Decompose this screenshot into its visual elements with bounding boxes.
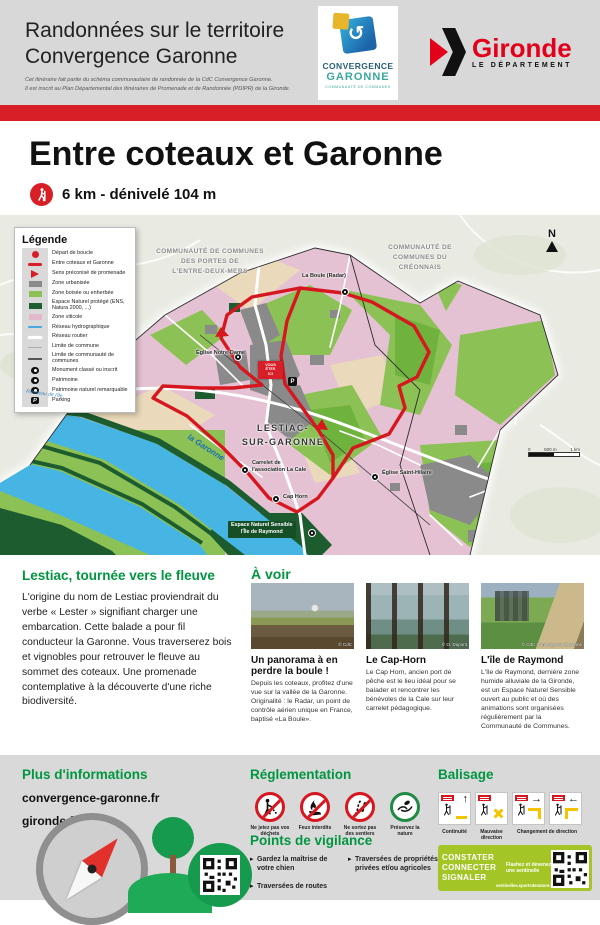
qr-code bbox=[200, 855, 240, 895]
arrow-up-icon: ↑ bbox=[463, 793, 469, 806]
zone-wooded-icon bbox=[22, 291, 48, 297]
north-letter: N bbox=[546, 229, 558, 240]
legend-item: Limite de communauté de communes bbox=[20, 353, 130, 365]
vigilance-item: Traversées de routes bbox=[250, 882, 347, 891]
card-cap-horn: © O. Dupont Le Cap-Horn Le Cap Horn, anc… bbox=[366, 583, 469, 732]
route-chip-icon bbox=[552, 795, 565, 801]
sentinelle-url[interactable]: sentinelles.sportsdenature.fr bbox=[496, 883, 553, 888]
direction-arrow-icon bbox=[22, 270, 48, 278]
picto-protect-nature: Préservez la nature bbox=[385, 792, 425, 838]
yellow-x-mark bbox=[493, 808, 504, 819]
legend-item: Patrimoine bbox=[20, 376, 130, 385]
gironde-department: LE DÉPARTEMENT bbox=[472, 62, 572, 69]
convergence-logo-line1: CONVERGENCE bbox=[323, 61, 394, 71]
no-fire-icon bbox=[300, 792, 330, 822]
route-chip-icon bbox=[515, 795, 528, 801]
legend-item: Monument classé ou inscrit bbox=[20, 366, 130, 375]
cc-creonnais-label: COMMUNAUTÉ DECOMMUNES DUCRÉONNAIS bbox=[360, 243, 480, 272]
sign-turn-left: ← bbox=[549, 792, 582, 825]
legend-item: Zone viticole bbox=[20, 313, 130, 322]
cap-horn-photo: © O. Dupont bbox=[366, 583, 469, 649]
hiker-icon bbox=[553, 803, 563, 821]
card-title: Le Cap-Horn bbox=[366, 655, 469, 666]
sentinelle-words: CONSTATER CONNECTER SIGNALER bbox=[442, 853, 504, 883]
content-section: Lestiac, tournée vers le fleuve L'origin… bbox=[0, 555, 600, 755]
convergence-garonne-logo: ↺ CONVERGENCE GARONNE COMMUNAUTÉ DE COMM… bbox=[318, 6, 398, 100]
map-parking-icon: P bbox=[288, 377, 297, 386]
gironde-name: Gironde bbox=[472, 35, 572, 61]
photo-credit: © CdC bbox=[338, 642, 352, 647]
legend-item: Réseau routier bbox=[20, 333, 130, 342]
card-panorama: © CdC Un panorama à en perdre la boule !… bbox=[251, 583, 354, 732]
card-text: Le Cap Horn, ancien port de pêche est le… bbox=[366, 669, 469, 714]
link-convergence-garonne[interactable]: convergence-garonne.fr bbox=[22, 791, 232, 805]
vigilance-item: Traversées de propriétés privées et/ou a… bbox=[348, 855, 440, 873]
compass-center-dot bbox=[88, 865, 97, 874]
photo-credit: © CdC Convergence Garonne bbox=[522, 642, 582, 647]
convergence-diamond-icon: ↺ bbox=[339, 16, 377, 54]
hiker-icon bbox=[516, 803, 526, 821]
route-chip-icon bbox=[441, 795, 454, 801]
card-title: Un panorama à en perdre la boule ! bbox=[251, 655, 354, 677]
legend-item: Espace Naturel protégé (ENS, Natura 2000… bbox=[20, 300, 130, 312]
trail-distance-elevation: 6 km - dénivelé 104 m bbox=[62, 186, 216, 203]
monument-icon bbox=[22, 367, 48, 375]
you-are-here-marker: VOUSÊTESICI bbox=[258, 361, 283, 379]
gironde-red-arrow bbox=[430, 38, 448, 66]
balisage-column: Balisage ↑ → ← bbox=[438, 767, 590, 845]
vigilance-item: Gardez la maîtrise de votre chien bbox=[250, 855, 340, 873]
panorama-photo: © CdC bbox=[251, 583, 354, 649]
red-divider-bar bbox=[0, 105, 600, 121]
description-heading: Lestiac, tournée vers le fleuve bbox=[22, 568, 215, 583]
eglise-saint-hilaire-label: Église Saint-Hilaire bbox=[382, 470, 432, 476]
trail-title-block: Entre coteaux et Garonne 6 km - dénivelé… bbox=[0, 121, 600, 215]
qr-code-circle bbox=[188, 843, 252, 907]
hiker-icon bbox=[30, 183, 53, 206]
yellow-corner-mark bbox=[528, 808, 541, 819]
zone-urban-icon bbox=[22, 281, 48, 287]
zone-protected-icon bbox=[22, 303, 48, 309]
reglementation-pictos: Ne jetez pas vos déchets Feux interdits bbox=[250, 792, 430, 838]
legend-item: Réseau hydrographique bbox=[20, 323, 130, 332]
sign-continuity: ↑ bbox=[438, 792, 471, 825]
eglise-notre-dame-label: Église Notre-Dame bbox=[196, 350, 245, 356]
north-arrow: N bbox=[546, 229, 558, 252]
hydro-network-icon bbox=[22, 326, 48, 328]
sign-turn-right: → bbox=[512, 792, 545, 825]
road-network-icon bbox=[22, 335, 48, 340]
legend-item: Zone urbanisée bbox=[20, 280, 130, 289]
board-title: Randonnées sur le territoire Convergence… bbox=[25, 18, 284, 71]
legend-item: PParking bbox=[20, 396, 130, 405]
gironde-logo-text: Gironde LE DÉPARTEMENT bbox=[472, 35, 572, 69]
footer: Plus d'informations convergence-garonne.… bbox=[0, 755, 600, 900]
board-note: Cet itinéraire fait partie du schéma com… bbox=[25, 76, 290, 94]
ens-ile-de-raymond-label: Espace Naturel Sensiblel'Île de Raymond bbox=[228, 521, 296, 538]
legend-title: Légende bbox=[22, 234, 130, 246]
map-legend: Légende Départ de boucle Entre coteaux e… bbox=[14, 227, 136, 413]
info-heading: Plus d'informations bbox=[22, 767, 232, 782]
north-triangle-icon bbox=[546, 241, 558, 252]
a-voir-cards: © CdC Un panorama à en perdre la boule !… bbox=[251, 583, 584, 732]
trail-map: Légende Départ de boucle Entre coteaux e… bbox=[0, 215, 600, 555]
yellow-corner-mark bbox=[565, 808, 578, 819]
legend-item: Entre coteaux et Garonne bbox=[20, 260, 130, 269]
ile-de-raymond-photo: © CdC Convergence Garonne bbox=[481, 583, 584, 649]
legend-item: Limite de commune bbox=[20, 343, 130, 352]
photo-credit: © O. Dupont bbox=[442, 642, 467, 647]
commune-limit-icon bbox=[22, 347, 48, 349]
card-title: L'île de Raymond bbox=[481, 655, 584, 666]
info-column: Plus d'informations convergence-garonne.… bbox=[22, 767, 232, 828]
gironde-arrow-icon bbox=[430, 28, 466, 76]
la-boule-poi-icon bbox=[341, 288, 349, 296]
lestiac-sur-garonne-label: LESTIAC-SUR-GARONNE bbox=[228, 421, 338, 450]
balisage-captions: Continuité Mauvaise direction Changement… bbox=[438, 829, 590, 845]
board-note-line1: Cet itinéraire fait partie du schéma com… bbox=[25, 76, 290, 85]
ens-poi-icon bbox=[308, 529, 316, 537]
a-voir-heading: À voir bbox=[251, 566, 291, 582]
picto-no-fire: Feux interdits bbox=[295, 792, 335, 838]
card-text: Depuis les coteaux, profitez d'une vue s… bbox=[251, 680, 354, 725]
picto-stay-on-trail: Ne sortez pas des sentiers bbox=[340, 792, 380, 838]
balisage-heading: Balisage bbox=[438, 767, 590, 782]
sentinelle-qr-code bbox=[551, 850, 589, 888]
trail-title: Entre coteaux et Garonne bbox=[29, 135, 443, 174]
reglementation-column: Réglementation Ne jetez pas vos déchets bbox=[250, 767, 430, 838]
protect-nature-icon bbox=[390, 792, 420, 822]
gironde-logo: Gironde LE DÉPARTEMENT bbox=[430, 28, 572, 76]
scale-mid: 500 m bbox=[544, 447, 557, 452]
convergence-logo-line2: GARONNE bbox=[326, 71, 389, 83]
cap-horn-label: Cap Horn bbox=[283, 494, 308, 500]
balisage-signs: ↑ → ← bbox=[438, 792, 590, 825]
reglementation-heading: Réglementation bbox=[250, 767, 430, 782]
header: Randonnées sur le territoire Convergence… bbox=[0, 0, 600, 105]
vigilance-heading: Points de vigilance bbox=[250, 833, 372, 848]
convergence-logo-subtitle: COMMUNAUTÉ DE COMMUNES bbox=[325, 85, 391, 89]
cap-horn-poi-icon bbox=[272, 495, 280, 503]
map-scale-bar: 0 500 m 1 km bbox=[528, 447, 580, 457]
trail-stats: 6 km - dénivelé 104 m bbox=[30, 183, 216, 206]
parking-icon: P bbox=[22, 397, 48, 405]
heritage-icon bbox=[22, 377, 48, 385]
legend-item: Zone boisée ou enherbée bbox=[20, 290, 130, 299]
no-litter-icon bbox=[255, 792, 285, 822]
carrelet-poi-icon bbox=[241, 466, 249, 474]
sentinelle-banner: CONSTATER CONNECTER SIGNALER Flashez et … bbox=[438, 845, 592, 891]
legend-item: Sens préconisé de promenade bbox=[20, 270, 130, 279]
board-title-line2: Convergence Garonne bbox=[25, 44, 284, 70]
stay-on-trail-icon bbox=[345, 792, 375, 822]
description-body: L'origine du nom de Lestiac proviendrait… bbox=[22, 591, 235, 710]
yellow-dash-mark bbox=[456, 816, 467, 819]
la-boule-label: La Boule (Radar) bbox=[302, 273, 346, 279]
cc-portes-entre-deux-mers-label: COMMUNAUTÉ DE COMMUNESDES PORTES DEL'ENT… bbox=[130, 247, 290, 276]
route-chip-icon bbox=[478, 795, 491, 801]
sign-wrong-direction bbox=[475, 792, 508, 825]
picto-no-litter: Ne jetez pas vos déchets bbox=[250, 792, 290, 838]
route-line-icon bbox=[22, 263, 48, 267]
board-title-line1: Randonnées sur le territoire bbox=[25, 18, 284, 44]
hiker-icon bbox=[442, 803, 452, 821]
scale-start: 0 bbox=[528, 447, 531, 452]
zone-vineyard-icon bbox=[22, 314, 48, 320]
arrow-right-icon: → bbox=[531, 793, 542, 806]
carrelet-label: Carrelet del'association La Cale bbox=[252, 460, 306, 474]
sentinelle-tagline: Flashez et devenez une sentinelle bbox=[506, 862, 552, 875]
scale-end: 1 km bbox=[570, 447, 580, 452]
hiker-icon bbox=[479, 803, 489, 821]
swirl-icon: ↺ bbox=[348, 21, 365, 46]
cdc-limit-icon bbox=[22, 358, 48, 360]
legend-item: Départ de boucle bbox=[20, 250, 130, 259]
card-ile-de-raymond: © CdC Convergence Garonne L'île de Raymo… bbox=[481, 583, 584, 732]
board-note-line2: Il est inscrit au Plan Départemental des… bbox=[25, 85, 290, 94]
arrow-left-icon: ← bbox=[568, 793, 579, 806]
eglise-saint-hilaire-poi-icon bbox=[371, 473, 379, 481]
route-start-icon bbox=[22, 251, 48, 258]
card-text: L'île de Raymond, dernière zone humide a… bbox=[481, 669, 584, 732]
